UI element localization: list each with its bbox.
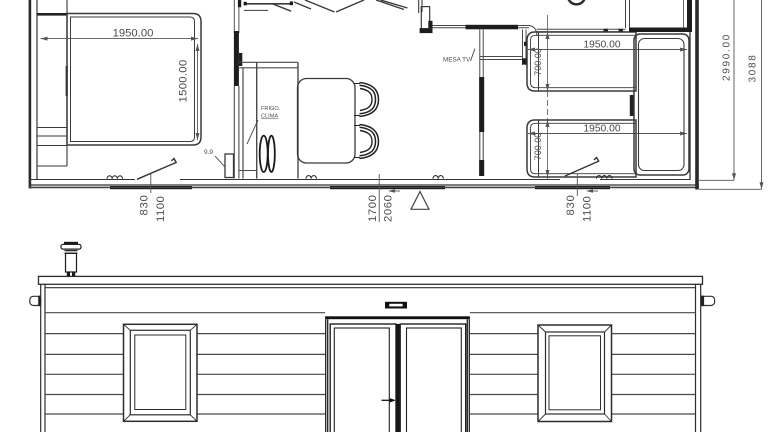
svg-text:1950.00: 1950.00: [583, 123, 620, 134]
svg-text:1950.00: 1950.00: [583, 39, 620, 50]
svg-text:2990.00: 2990.00: [722, 33, 733, 81]
svg-text:1100: 1100: [581, 196, 593, 222]
svg-text:3088: 3088: [748, 53, 759, 82]
svg-text:830: 830: [139, 195, 151, 216]
svg-text:1500.00: 1500.00: [178, 60, 190, 103]
svg-text:1100: 1100: [155, 196, 167, 222]
svg-text:700.00: 700.00: [533, 133, 543, 161]
svg-text:830: 830: [565, 195, 577, 216]
svg-text:2060: 2060: [382, 194, 394, 222]
svg-text:MESA TV: MESA TV: [443, 57, 471, 64]
svg-text:1700: 1700: [367, 194, 379, 222]
svg-text:1950.00: 1950.00: [113, 28, 154, 40]
svg-text:9.9: 9.9: [204, 149, 213, 156]
svg-text:CLIMA: CLIMA: [261, 114, 278, 120]
svg-text:700.00: 700.00: [533, 48, 543, 76]
svg-text:FRIGO.: FRIGO.: [261, 106, 281, 112]
